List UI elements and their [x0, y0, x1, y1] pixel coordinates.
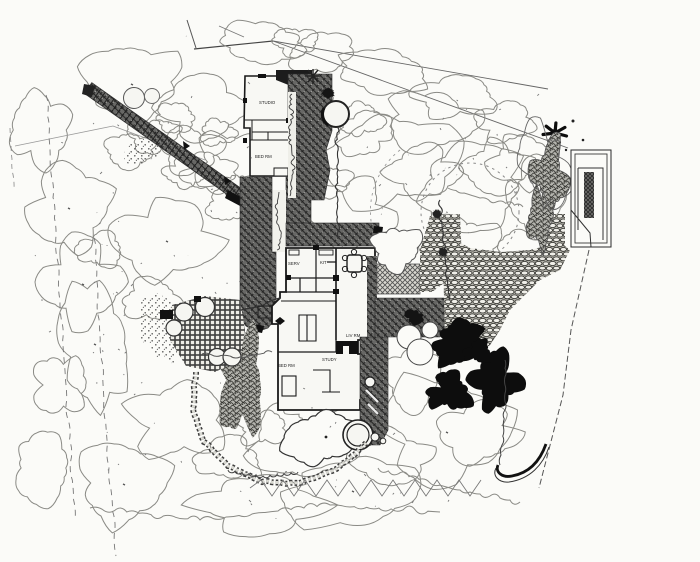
- svg-text:BED RM: BED RM: [278, 363, 295, 368]
- svg-text:BED RM: BED RM: [255, 154, 272, 159]
- svg-text:KIT: KIT: [320, 260, 327, 265]
- svg-text:STUDY: STUDY: [322, 357, 337, 362]
- svg-text:STUDIO: STUDIO: [259, 100, 276, 105]
- svg-text:LIV RM: LIV RM: [346, 333, 361, 338]
- svg-text:SERV: SERV: [288, 261, 300, 266]
